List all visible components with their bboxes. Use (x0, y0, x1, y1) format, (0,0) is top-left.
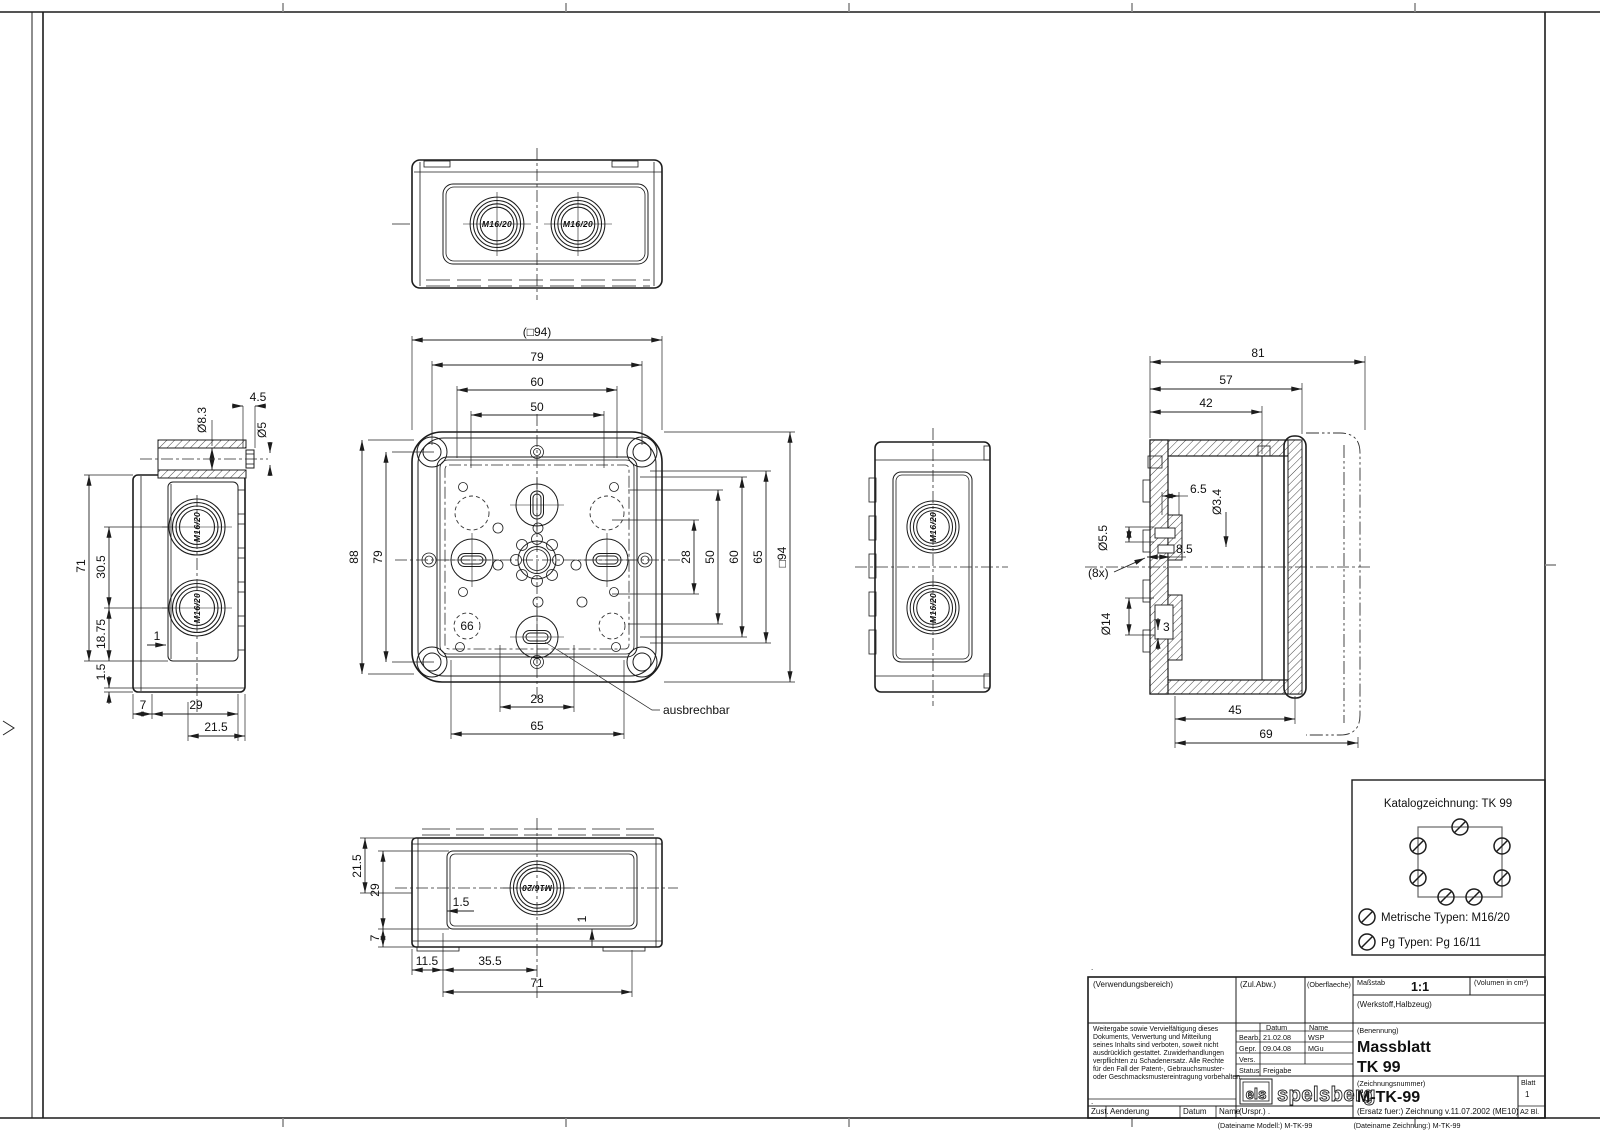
front-view-knockout-label-1: M16/20 (928, 512, 938, 542)
tb-name-col: Name (1219, 1107, 1241, 1116)
dim-main-60-top: 60 (530, 375, 544, 389)
dim-bottom-355: 35.5 (478, 954, 502, 968)
dim-section-dia34: Ø3.4 (1210, 489, 1224, 515)
dim-section-dia14: Ø14 (1099, 612, 1113, 635)
tb-benennung-2: TK 99 (1357, 1059, 1401, 1076)
dim-section-3: 3 (1163, 620, 1170, 634)
left-view-knockout-label-1: M16/20 (192, 512, 202, 542)
tb-zust: Zust. (1091, 1107, 1109, 1116)
label-66: 66 (460, 619, 474, 633)
metric-knockout-icon (1359, 909, 1375, 925)
logo-els: els (1246, 1086, 1267, 1103)
spelsberg-logo: els spelsberg (1240, 1079, 1376, 1106)
footer: (Dateiname Modell:) M-TK-99 (Dateiname Z… (1218, 1121, 1461, 1130)
bottom-view-knockout-label: M16/20 (522, 883, 552, 893)
dim-section-81: 81 (1251, 346, 1265, 360)
tb-benennung-label: (Benennung) (1357, 1026, 1399, 1035)
dim-section-dia55: Ø5.5 (1096, 525, 1110, 551)
svg-text:verpflichten zu Schadenersatz.: verpflichten zu Schadenersatz. Alle Rech… (1093, 1058, 1224, 1065)
svg-text:seines Inhalts sind verboten,: seines Inhalts sind verboten, soweit nic… (1093, 1042, 1218, 1049)
margin-arrow-marker (3, 721, 14, 735)
left-side-view: M16/20 M16/20 (133, 440, 268, 712)
catalog-title: Katalogzeichnung: TK 99 (1384, 798, 1512, 810)
catalog-box: Katalogzeichnung: TK 99 Metrische Typen:… (1352, 780, 1545, 955)
svg-text:ausdrücklich gestattet. Zuwide: ausdrücklich gestattet. Zuwiderhandlunge… (1093, 1050, 1224, 1057)
dim-main-79-left: 79 (371, 550, 385, 564)
dim-section-85: 8.5 (1176, 542, 1193, 556)
tb-format: A2 Bl. (1520, 1107, 1539, 1116)
dim-bottom-115: 11.5 (416, 954, 439, 968)
bottom-view: M16/20 (395, 818, 678, 1000)
dim-section-57: 57 (1219, 373, 1233, 387)
dim-main-65-right: 65 (751, 550, 765, 564)
tb-dot-top: . (1091, 963, 1093, 972)
dim-section-65: 6.5 (1190, 482, 1207, 496)
dim-main-50-right: 50 (703, 550, 717, 564)
dim-main-94-right: □94 (775, 546, 789, 567)
title-block: (Verwendungsbereich) (Zul.Abw.) (Oberfla… (1088, 963, 1545, 1118)
tb-datum-col: Datum (1183, 1107, 1207, 1116)
tb-bearb-name: WSP (1308, 1033, 1325, 1042)
left-view-knockout-label-2: M16/20 (192, 593, 202, 623)
tb-oberflaeche: (Oberflaeche) (1307, 980, 1351, 989)
dim-bottom-7: 7 (368, 934, 382, 941)
annotation-ausbrechbar: ausbrechbar (663, 703, 730, 717)
dim-left-dia83: Ø8.3 (195, 407, 209, 433)
tb-status-value: Freigabe (1263, 1066, 1291, 1075)
tb-werkstoff: (Werkstoff,Halbzeug) (1357, 1000, 1432, 1009)
tb-massstab-label: Maßstab (1357, 978, 1385, 987)
front-view-knockout-label-2: M16/20 (928, 593, 938, 623)
catalog-metric-line: Metrische Typen: M16/20 (1381, 912, 1510, 924)
dim-bottom-29: 29 (368, 883, 382, 897)
tb-copyright: Weitergabe sowie Vervielfältigung dieses… (1093, 1026, 1242, 1081)
tb-gepr-name: MGu (1308, 1044, 1324, 1053)
dim-section-42: 42 (1199, 396, 1213, 410)
tb-name-header: Name (1309, 1023, 1328, 1032)
svg-text:für den Fall der Patent-, Gebr: für den Fall der Patent-, Gebrauchsmuste… (1093, 1066, 1224, 1073)
top-view-knockout-label-1: M16/20 (482, 219, 512, 229)
tb-aenderung: Aenderung (1110, 1107, 1149, 1116)
dim-bottom-15: 1.5 (453, 895, 470, 909)
tb-gepr-label: Gepr. (1239, 1044, 1257, 1053)
svg-text:oder Geschmacksmustereintragun: oder Geschmacksmustereintragung vorbehal… (1093, 1074, 1242, 1081)
dim-main-65-bottom: 65 (530, 719, 544, 733)
dim-left-dia5: Ø5 (255, 422, 269, 438)
tb-gepr-datum: 09.04.08 (1263, 1044, 1291, 1053)
dim-left-7: 7 (140, 698, 147, 712)
tb-vers-label: Vers. (1239, 1055, 1255, 1064)
svg-text:Weitergabe sowie Vervielfältig: Weitergabe sowie Vervielfältigung dieses (1093, 1026, 1219, 1033)
logo-spelsberg: spelsberg (1277, 1084, 1376, 1106)
drawing-sheet: M16/20 M16/20 (0, 0, 1600, 1132)
dim-bottom-1: 1 (575, 915, 589, 922)
svg-text:Dokuments, Verwertung und Mitt: Dokuments, Verwertung und Mitteilung (1093, 1034, 1212, 1041)
dim-left-1875: 18.75 (94, 619, 108, 649)
dim-main-28-right: 28 (679, 550, 693, 564)
oval-knockouts (445, 478, 634, 664)
top-view-knockout-label-2: M16/20 (563, 219, 593, 229)
bottom-view-dimensions: 21.5 29 7 1.5 1 11.5 35.5 71 (350, 838, 632, 997)
left-view-edge-tabs (238, 490, 245, 650)
tb-verwendungsbereich: (Verwendungsbereich) (1093, 980, 1173, 989)
tb-blatt-value: 1 (1525, 1090, 1530, 1099)
dim-main-88-left: 88 (347, 550, 361, 564)
catalog-pg-line: Pg Typen: Pg 16/11 (1381, 937, 1481, 949)
dim-left-1: 1 (154, 629, 161, 643)
dim-section-69: 69 (1259, 727, 1273, 741)
mounting-lug-section (140, 440, 268, 478)
tb-ersatz: (Ersatz fuer:) Zeichnung v.11.07.2002 (M… (1357, 1107, 1519, 1116)
dim-left-305: 30.5 (94, 555, 108, 579)
tb-blatt-label: Blatt (1521, 1078, 1535, 1087)
dim-section-8x: (8x) (1088, 566, 1109, 580)
main-view: 66 ausbrechbar (395, 414, 730, 717)
pg-knockout-icon (1359, 934, 1375, 950)
dim-left-29: 29 (189, 698, 203, 712)
dim-bottom-71: 71 (530, 976, 544, 990)
tb-volumen: (Volumen in cm³) (1474, 978, 1528, 987)
dim-left-45: 4.5 (250, 390, 267, 404)
tb-status-label: Status (1239, 1066, 1260, 1075)
dim-left-15: 1.5 (94, 663, 108, 680)
tb-bearb-label: Bearb. (1239, 1033, 1260, 1042)
tb-bearb-datum: 21.02.08 (1263, 1033, 1291, 1042)
dim-section-45: 45 (1228, 703, 1242, 717)
dim-left-71: 71 (74, 559, 88, 573)
dim-main-28-bottom: 28 (530, 692, 544, 706)
tb-massstab-value: 1:1 (1411, 980, 1429, 994)
dim-main-60-right: 60 (727, 550, 741, 564)
knockout-position-symbols (1410, 819, 1510, 905)
top-view: M16/20 M16/20 (392, 148, 662, 300)
main-view-dimensions: (□94) 79 60 50 88 79 28 50 60 65 □94 28 … (347, 325, 795, 739)
footer-drawing-filename: (Dateiname Zeichnung:) M-TK-99 (1353, 1121, 1460, 1130)
tb-dot-row: . (1091, 1097, 1093, 1106)
section-view (1085, 433, 1372, 735)
dim-main-79-top: 79 (530, 350, 544, 364)
dim-left-215: 21.5 (204, 720, 228, 734)
dim-bottom-215: 21.5 (350, 854, 364, 878)
tb-benennung-1: Massblatt (1357, 1039, 1431, 1056)
tb-datum-header: Datum (1266, 1023, 1287, 1032)
tb-urspr: (Urspr.) . (1239, 1107, 1270, 1116)
dim-main-50-top: 50 (530, 400, 544, 414)
footer-model-filename: (Dateiname Modell:) M-TK-99 (1218, 1121, 1313, 1130)
tb-zul-abw: (Zul.Abw.) (1240, 980, 1276, 989)
front-view: M16/20 M16/20 (855, 428, 1008, 706)
dim-main-sq94: (□94) (523, 325, 552, 339)
